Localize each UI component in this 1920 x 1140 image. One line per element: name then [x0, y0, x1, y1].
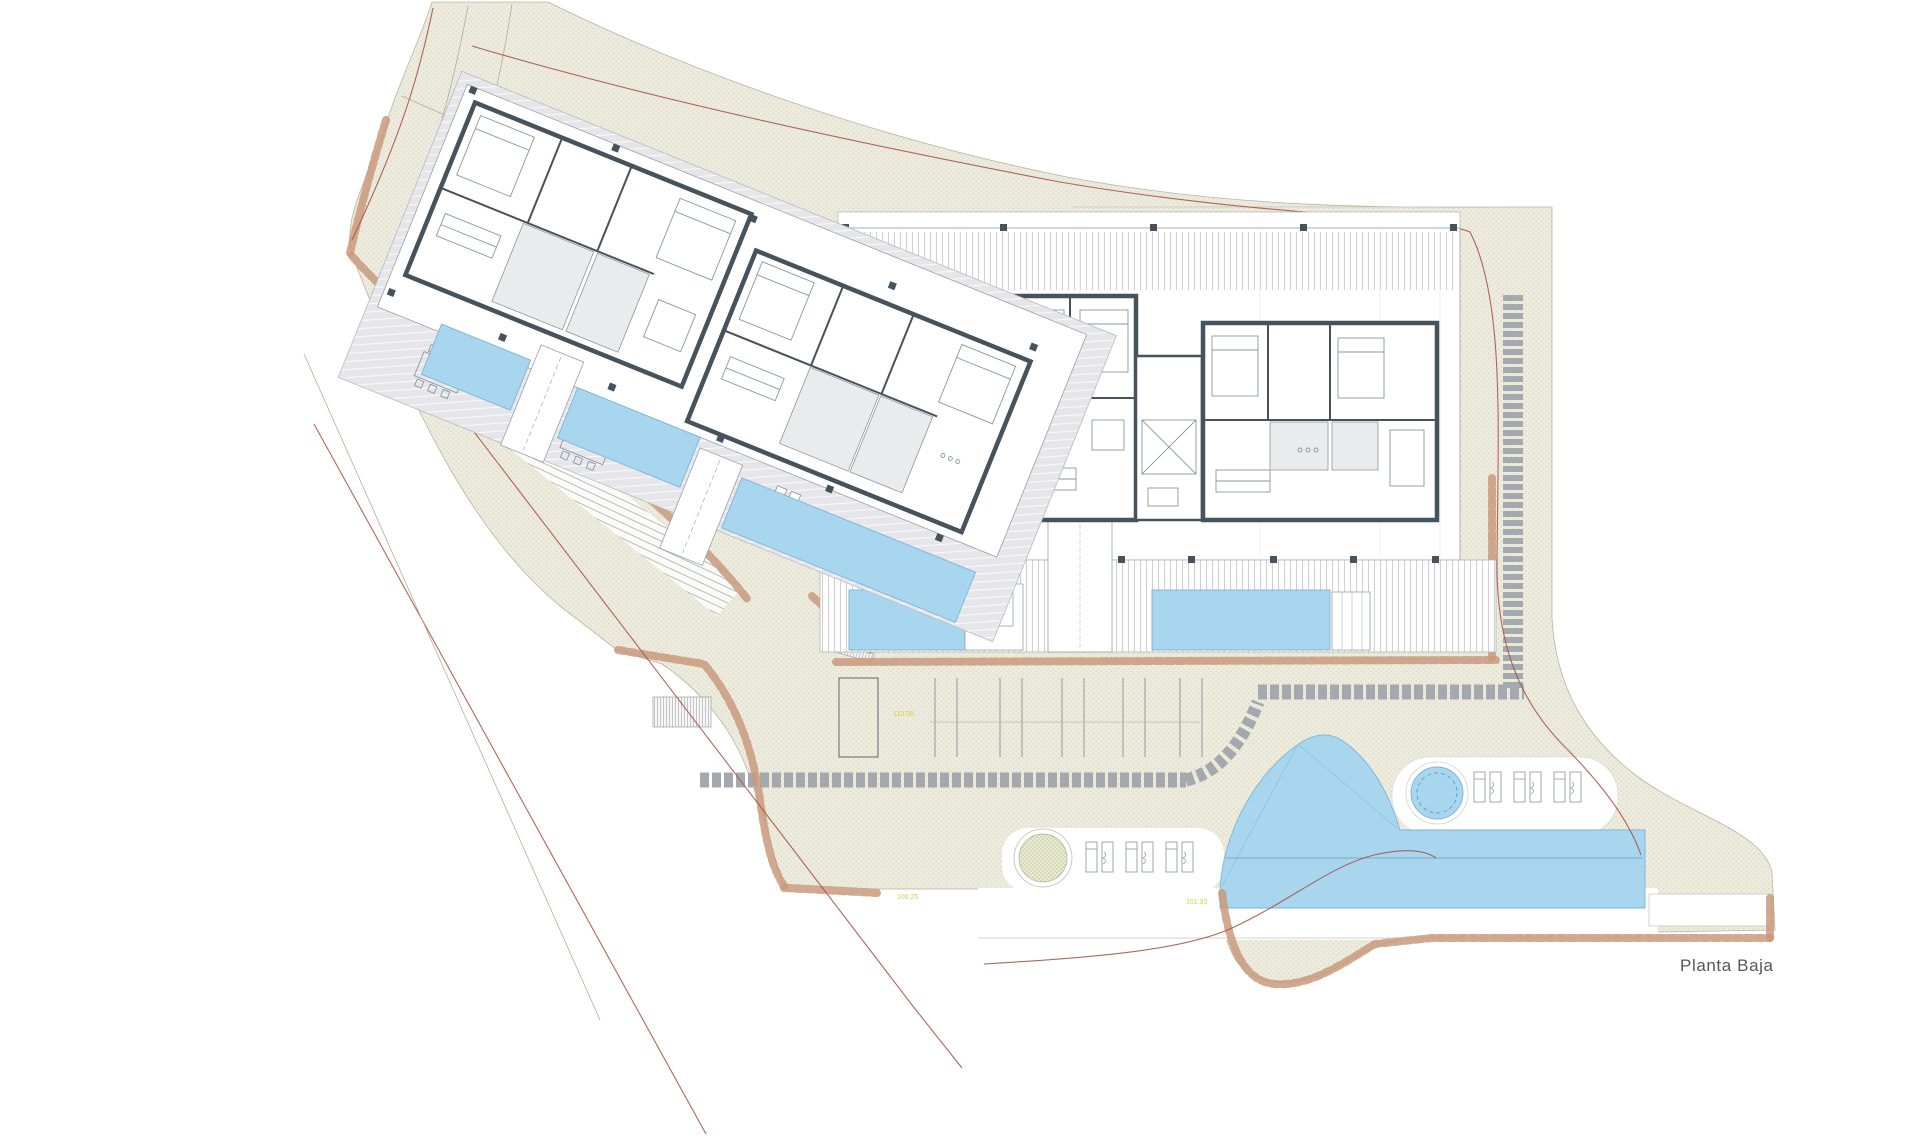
sun-lounger: [1570, 772, 1581, 802]
sun-lounger: [1166, 842, 1177, 872]
planter-green-circle: [1019, 834, 1067, 882]
sun-lounger: [1182, 842, 1193, 872]
pool-steps: [1332, 592, 1370, 650]
level-mark: 101.33: [1186, 899, 1208, 906]
sun-lounger: [1126, 842, 1137, 872]
stair-core: [1136, 356, 1202, 520]
sun-lounger: [1102, 842, 1113, 872]
stone-wall: [836, 660, 1496, 662]
plan-title: Planta Baja: [1680, 956, 1774, 975]
sun-lounger: [1530, 772, 1541, 802]
sun-lounger: [1554, 772, 1565, 802]
sun-lounger: [1490, 772, 1501, 802]
exterior-stair-comb: [653, 697, 711, 727]
spa-circle: [1411, 767, 1463, 819]
sun-lounger: [1474, 772, 1485, 802]
terrace-pool-b: [1152, 590, 1330, 650]
planter-notch: [1649, 894, 1771, 926]
planter-circle-group: [1014, 829, 1072, 887]
apartment-unit-b: [1203, 323, 1437, 520]
stone-wall: [784, 888, 877, 893]
floor-plan-page: 110.05 100.25 101.33 Planta Baja: [0, 0, 1920, 1140]
sun-lounger: [1086, 842, 1097, 872]
level-mark: 100.25: [897, 894, 919, 901]
sun-lounger: [1142, 842, 1153, 872]
sun-lounger: [1514, 772, 1525, 802]
roof-edge-band: [838, 212, 1460, 228]
level-mark: 110.05: [893, 711, 914, 718]
site-plan-drawing: 110.05 100.25 101.33 Planta Baja: [0, 0, 1920, 1140]
